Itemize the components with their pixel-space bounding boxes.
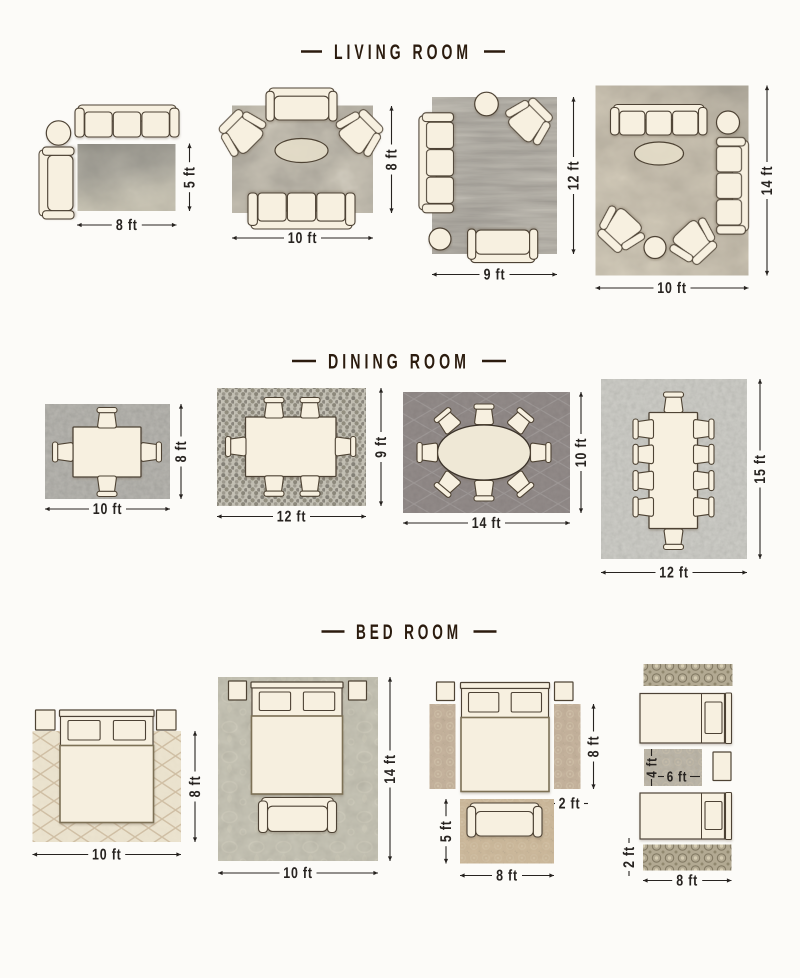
svg-text:14 ft: 14 ft — [382, 754, 399, 784]
svg-text:8 ft: 8 ft — [586, 736, 603, 758]
svg-text:8 ft: 8 ft — [116, 217, 138, 234]
svg-text:2 ft: 2 ft — [621, 846, 638, 868]
svg-text:2 ft: 2 ft — [559, 796, 581, 813]
svg-text:4 ft: 4 ft — [645, 757, 661, 778]
svg-text:15 ft: 15 ft — [752, 454, 769, 484]
svg-text:5 ft: 5 ft — [438, 820, 455, 842]
svg-text:DINING ROOM: DINING ROOM — [328, 350, 470, 373]
svg-text:10 ft: 10 ft — [92, 847, 122, 864]
svg-text:14 ft: 14 ft — [759, 166, 776, 196]
svg-text:8 ft: 8 ft — [187, 776, 204, 798]
svg-text:10 ft: 10 ft — [283, 865, 313, 882]
svg-text:8 ft: 8 ft — [496, 868, 518, 885]
svg-text:BED ROOM: BED ROOM — [356, 621, 462, 644]
svg-text:8 ft: 8 ft — [173, 441, 190, 463]
svg-text:10 ft: 10 ft — [657, 280, 687, 297]
svg-text:10 ft: 10 ft — [93, 501, 123, 518]
svg-text:14 ft: 14 ft — [472, 515, 502, 532]
svg-text:12 ft: 12 ft — [659, 565, 689, 582]
svg-text:12 ft: 12 ft — [277, 509, 307, 526]
svg-text:5 ft: 5 ft — [182, 166, 199, 188]
svg-text:6 ft: 6 ft — [667, 770, 688, 786]
svg-text:9 ft: 9 ft — [373, 436, 390, 458]
svg-text:10 ft: 10 ft — [288, 230, 318, 247]
svg-text:8 ft: 8 ft — [676, 873, 698, 890]
svg-text:LIVING ROOM: LIVING ROOM — [334, 41, 472, 64]
svg-text:9 ft: 9 ft — [484, 267, 506, 284]
svg-text:10 ft: 10 ft — [573, 438, 590, 468]
svg-text:12 ft: 12 ft — [566, 161, 583, 191]
svg-text:8 ft: 8 ft — [384, 149, 401, 171]
